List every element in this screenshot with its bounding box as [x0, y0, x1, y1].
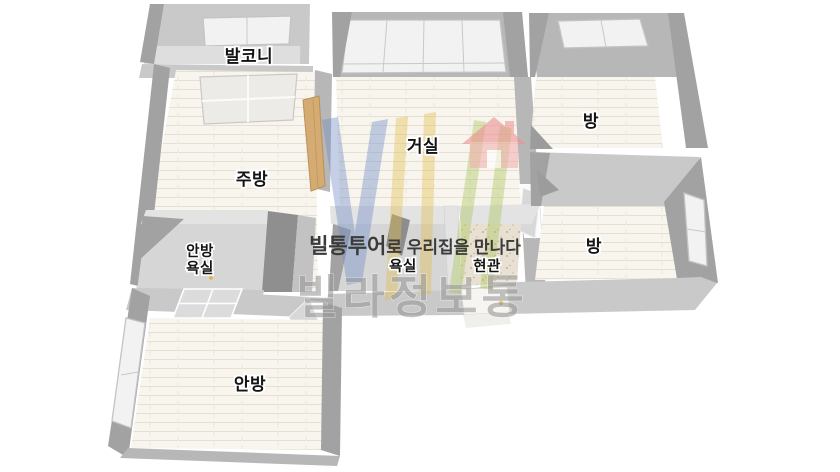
room-mid-right: [530, 152, 718, 283]
floorplan-canvas: 발코니 주방 거실 방 방 안방 욕실 욕실 현관 안방 빌통투어로 우리집을 …: [0, 0, 840, 472]
label-master-bath-2: 욕실: [186, 260, 214, 277]
label-master-bath-1: 안방: [186, 242, 214, 260]
label-living: 거실: [407, 137, 439, 156]
label-room-top-right: 방: [583, 112, 599, 131]
floorplan-3d-render: 발코니 주방 거실 방 방 안방 욕실 욕실 현관 안방 빌통투어로 우리집을 …: [0, 0, 840, 472]
brand-watermark-text: 빌통투어로 우리집을 만나다 빌라정보통: [296, 235, 528, 323]
watermark-brand: 빌라정보통: [296, 271, 528, 323]
room-top-right: [529, 13, 708, 149]
watermark-slogan: 빌통투어로 우리집을 만나다: [309, 235, 521, 258]
label-master-bedroom: 안방: [234, 375, 266, 394]
kitchen-tile-floor: [200, 74, 297, 124]
bedroom-closet-grid: [173, 289, 242, 318]
label-kitchen: 주방: [236, 170, 268, 189]
label-balcony: 발코니: [225, 47, 273, 66]
label-room-mid-right: 방: [586, 237, 602, 256]
